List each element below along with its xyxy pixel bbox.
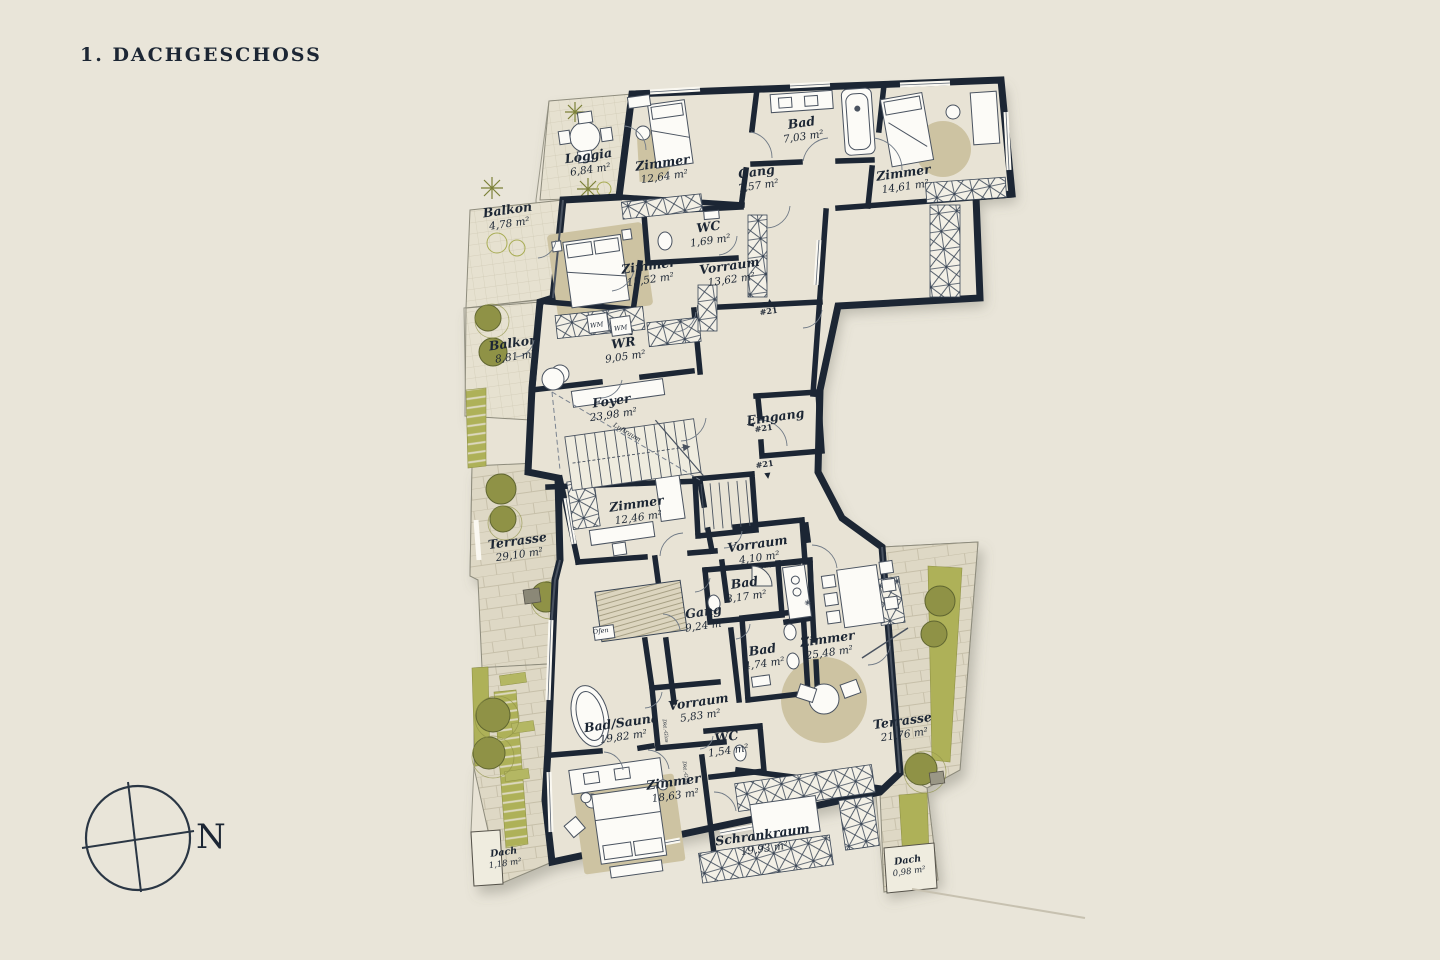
- floorplan-drawing: N Loggia6,84 m²Zimmer12,64 m²Bad7,03 m²G…: [0, 0, 1440, 960]
- bathtub-1: [841, 88, 876, 156]
- compass-rose: [82, 782, 194, 892]
- dining-table: [837, 565, 885, 628]
- north-label: N: [196, 817, 226, 857]
- toilet-1: [658, 232, 672, 250]
- column: [542, 368, 564, 390]
- roof-shadow-line: [912, 889, 1085, 918]
- room-label: Gang7,57 m²: [735, 161, 779, 194]
- floorplan-page: 1. DACHGESCHOSS: [0, 0, 1440, 960]
- room-label: Gang9,24 m²: [682, 601, 726, 634]
